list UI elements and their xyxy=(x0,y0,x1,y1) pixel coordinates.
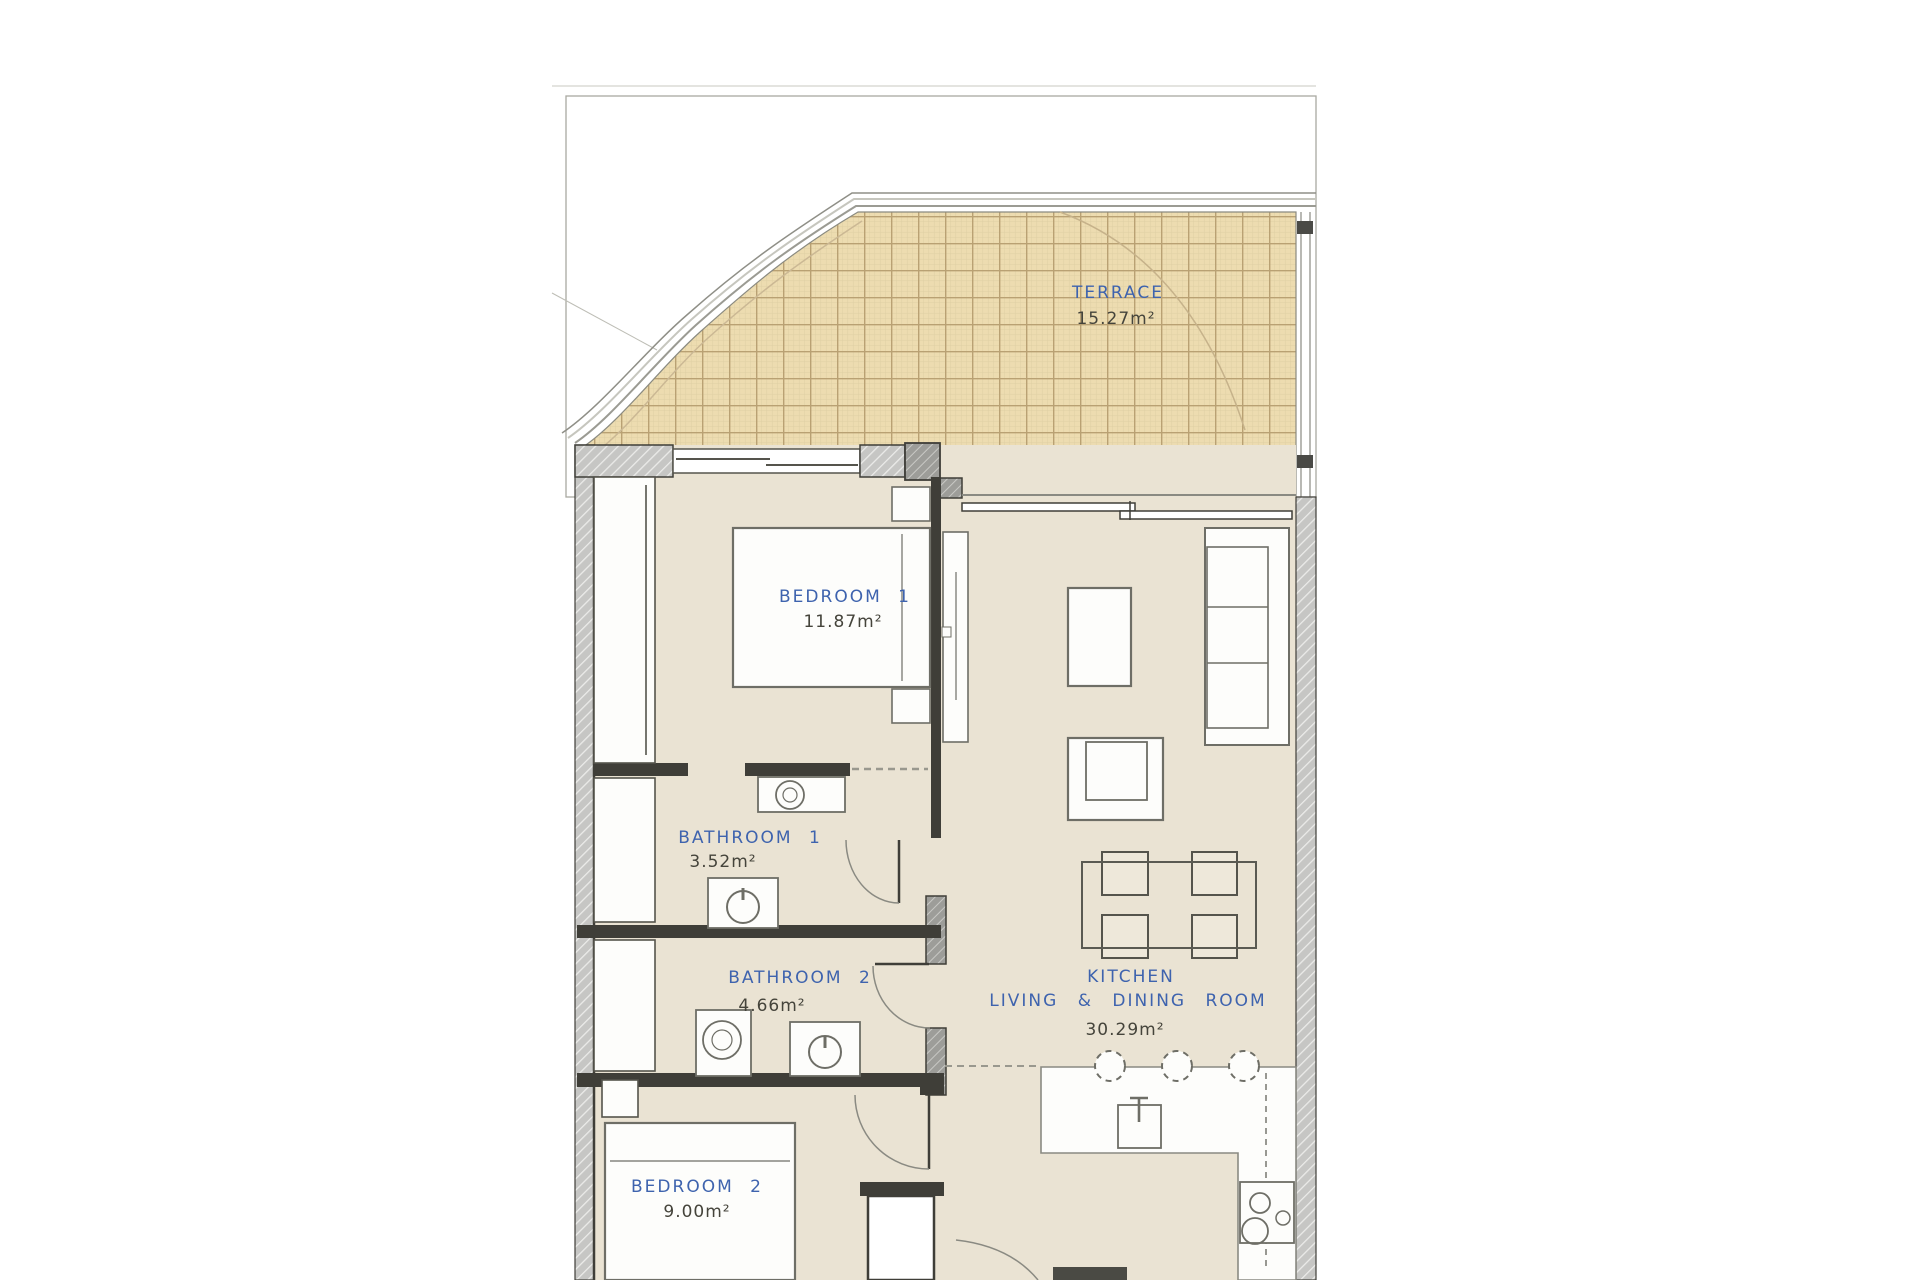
right-wall xyxy=(1296,497,1316,1280)
dining-chair xyxy=(1102,852,1148,895)
floor-plan-drawing xyxy=(0,0,1920,1280)
bedroom1-east-wall xyxy=(931,477,941,838)
bedroom2-nightstand xyxy=(602,1080,638,1117)
bed-2 xyxy=(605,1123,795,1280)
dining-chair xyxy=(1192,915,1237,958)
bathroom1-shower xyxy=(594,778,655,922)
bar-stool xyxy=(1095,1051,1125,1081)
bar-stool xyxy=(1229,1051,1259,1081)
sofa xyxy=(1205,528,1289,745)
bedroom2-furniture xyxy=(605,1123,795,1280)
corridor-corner-stub xyxy=(920,1073,944,1095)
coffee-table xyxy=(1068,588,1131,686)
wall-recesses xyxy=(594,477,655,1117)
dining-chair xyxy=(1102,915,1148,958)
nightstand-1a xyxy=(892,487,930,521)
dining-chair xyxy=(1192,852,1237,895)
left-wall xyxy=(575,445,594,1280)
tv-unit-handle xyxy=(942,627,951,637)
bedroom1-south-wall-a xyxy=(594,763,688,776)
floor-plan-page: TERRACE 15.27m² BEDROOM 1 11.87m² BATHRO… xyxy=(0,0,1920,1280)
top-wall-mid-pier xyxy=(860,445,905,477)
hob-icon xyxy=(1240,1182,1294,1244)
toilet-icon-bathroom1 xyxy=(708,878,778,928)
nightstand-1b xyxy=(892,689,930,723)
bedroom1-window xyxy=(673,449,860,473)
sink-icon-bathroom2 xyxy=(696,1010,751,1076)
bed-1 xyxy=(733,528,930,687)
bar-stool xyxy=(1162,1051,1192,1081)
vanity-1 xyxy=(758,777,845,812)
top-wall-corner-column xyxy=(905,443,940,480)
top-wall-left-pier xyxy=(575,445,673,477)
bathroom2-shower xyxy=(594,940,655,1071)
entry-cabinet xyxy=(1053,1267,1127,1280)
entry-door-leaf xyxy=(868,1196,934,1280)
entry-wall-stub xyxy=(860,1182,944,1196)
bathroom1-north-wall xyxy=(745,763,850,776)
